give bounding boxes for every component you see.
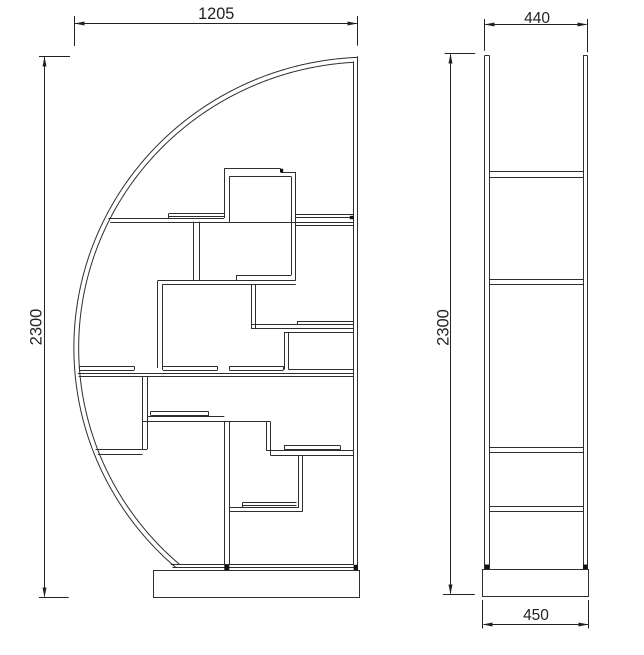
svg-text:2300: 2300 (434, 309, 452, 346)
svg-text:1205: 1205 (198, 5, 234, 23)
svg-text:2300: 2300 (28, 309, 46, 346)
svg-text:440: 440 (524, 10, 550, 27)
svg-text:450: 450 (523, 607, 549, 624)
